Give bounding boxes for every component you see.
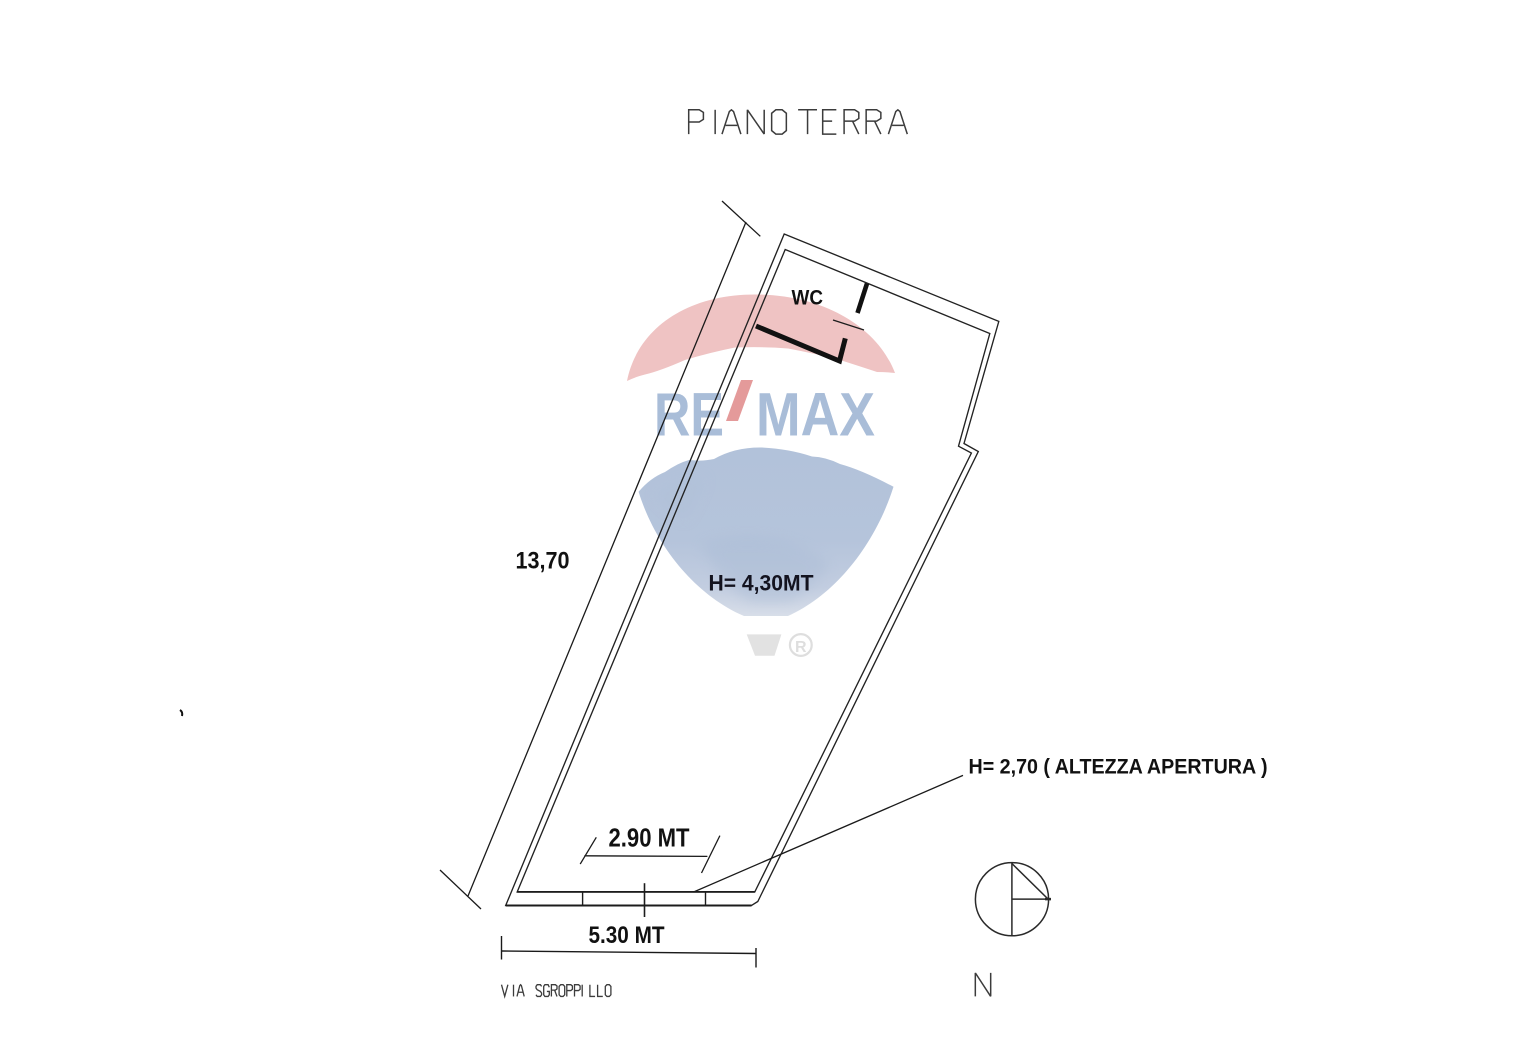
svg-text:13,70: 13,70 <box>516 548 570 575</box>
svg-text:5.30 MT: 5.30 MT <box>589 922 665 949</box>
svg-text:2.90 MT: 2.90 MT <box>609 823 690 853</box>
svg-text:WC: WC <box>792 287 824 310</box>
svg-text:MAX: MAX <box>756 381 875 449</box>
svg-text:R: R <box>795 639 807 656</box>
svg-text:H= 4,30MT: H= 4,30MT <box>709 571 815 596</box>
svg-text:RE: RE <box>654 381 724 449</box>
svg-text:H= 2,70 ( ALTEZZA APERTURA ): H= 2,70 ( ALTEZZA APERTURA ) <box>969 756 1268 779</box>
